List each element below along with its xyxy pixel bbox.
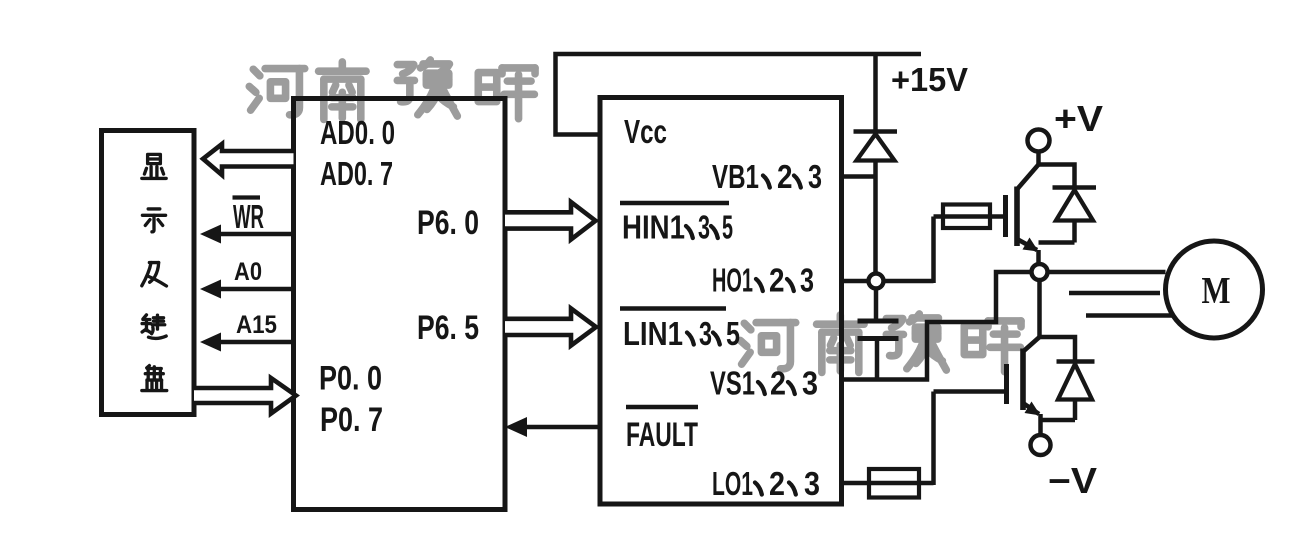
svg-text:FAULT: FAULT (626, 416, 698, 454)
svg-text:2: 2 (770, 366, 786, 403)
svg-text:M: M (1202, 270, 1231, 312)
svg-text:3: 3 (800, 263, 814, 300)
svg-text:HIN1: HIN1 (622, 210, 685, 247)
svg-text:5: 5 (726, 316, 740, 353)
svg-text:Vcc: Vcc (624, 113, 667, 150)
svg-text:A0: A0 (234, 258, 262, 286)
svg-text:LIN1: LIN1 (623, 316, 683, 353)
svg-text:5: 5 (722, 210, 733, 247)
svg-text:HO1: HO1 (712, 263, 753, 300)
svg-text:2: 2 (769, 466, 785, 503)
svg-text:LO1: LO1 (712, 466, 753, 503)
svg-text:3: 3 (699, 316, 712, 353)
svg-text:P6. 5: P6. 5 (417, 309, 479, 347)
svg-text:2: 2 (769, 263, 785, 300)
svg-text:VS1: VS1 (710, 366, 755, 403)
svg-text:AD0. 0: AD0. 0 (320, 115, 395, 152)
svg-text:−V: −V (1048, 460, 1097, 501)
svg-text:3: 3 (804, 466, 820, 503)
svg-text:A15: A15 (236, 311, 277, 339)
svg-text:P0. 0: P0. 0 (319, 360, 382, 398)
svg-text:3: 3 (698, 210, 710, 247)
svg-text:2: 2 (777, 159, 793, 196)
svg-text:+V: +V (1054, 98, 1103, 139)
svg-text:WR: WR (233, 198, 264, 235)
svg-text:P0. 7: P0. 7 (320, 401, 383, 439)
svg-text:VB1: VB1 (712, 159, 759, 196)
svg-text:3: 3 (802, 366, 818, 403)
svg-text:3: 3 (808, 159, 822, 196)
svg-text:AD0. 7: AD0. 7 (320, 156, 393, 193)
svg-text:+15V: +15V (891, 61, 968, 98)
svg-text:P6. 0: P6. 0 (417, 204, 479, 242)
